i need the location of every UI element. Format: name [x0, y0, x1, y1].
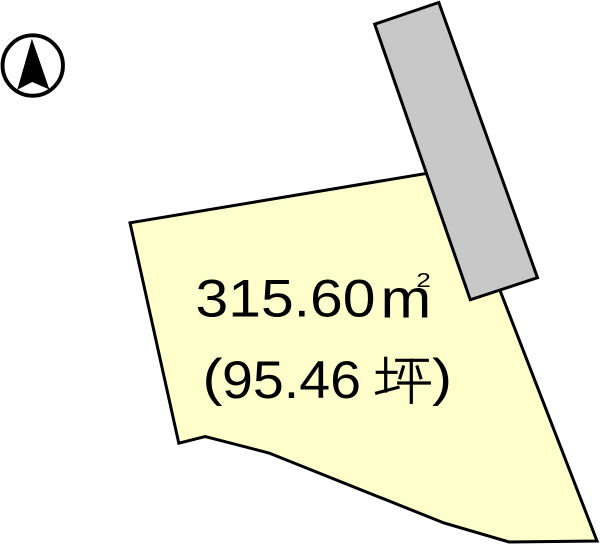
- svg-text:(: (: [202, 349, 223, 407]
- svg-text:2: 2: [416, 270, 431, 292]
- svg-text:95.46: 95.46: [222, 351, 361, 410]
- svg-text:): ): [432, 349, 452, 407]
- svg-text:315.60: 315.60: [196, 270, 376, 329]
